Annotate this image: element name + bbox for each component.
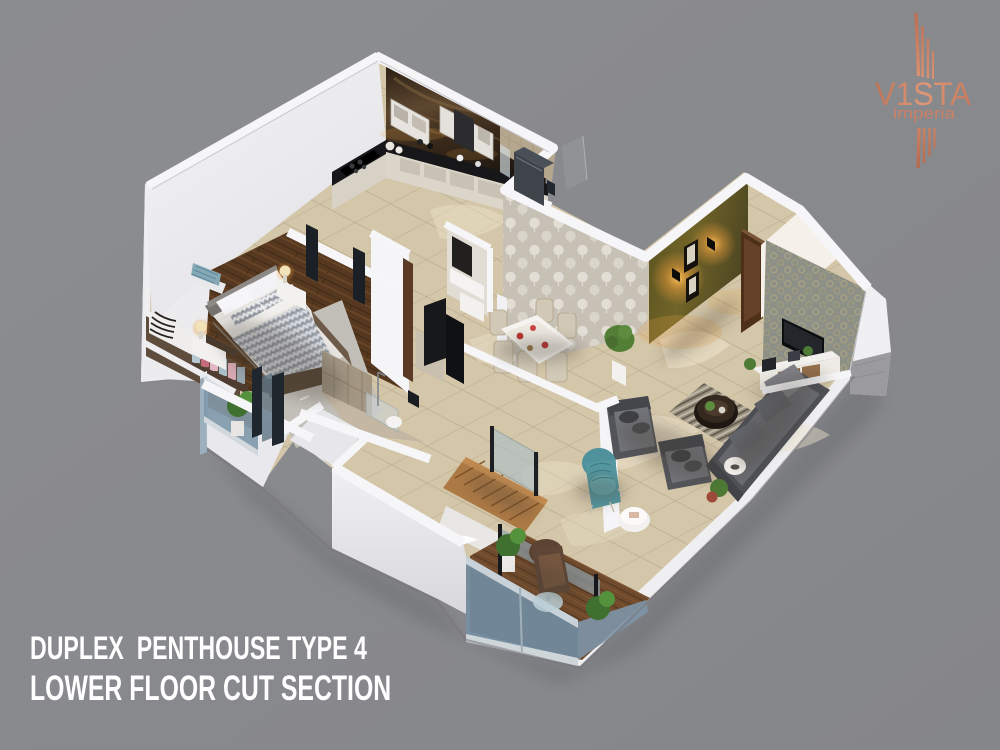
svg-text:imperia: imperia xyxy=(893,106,955,123)
